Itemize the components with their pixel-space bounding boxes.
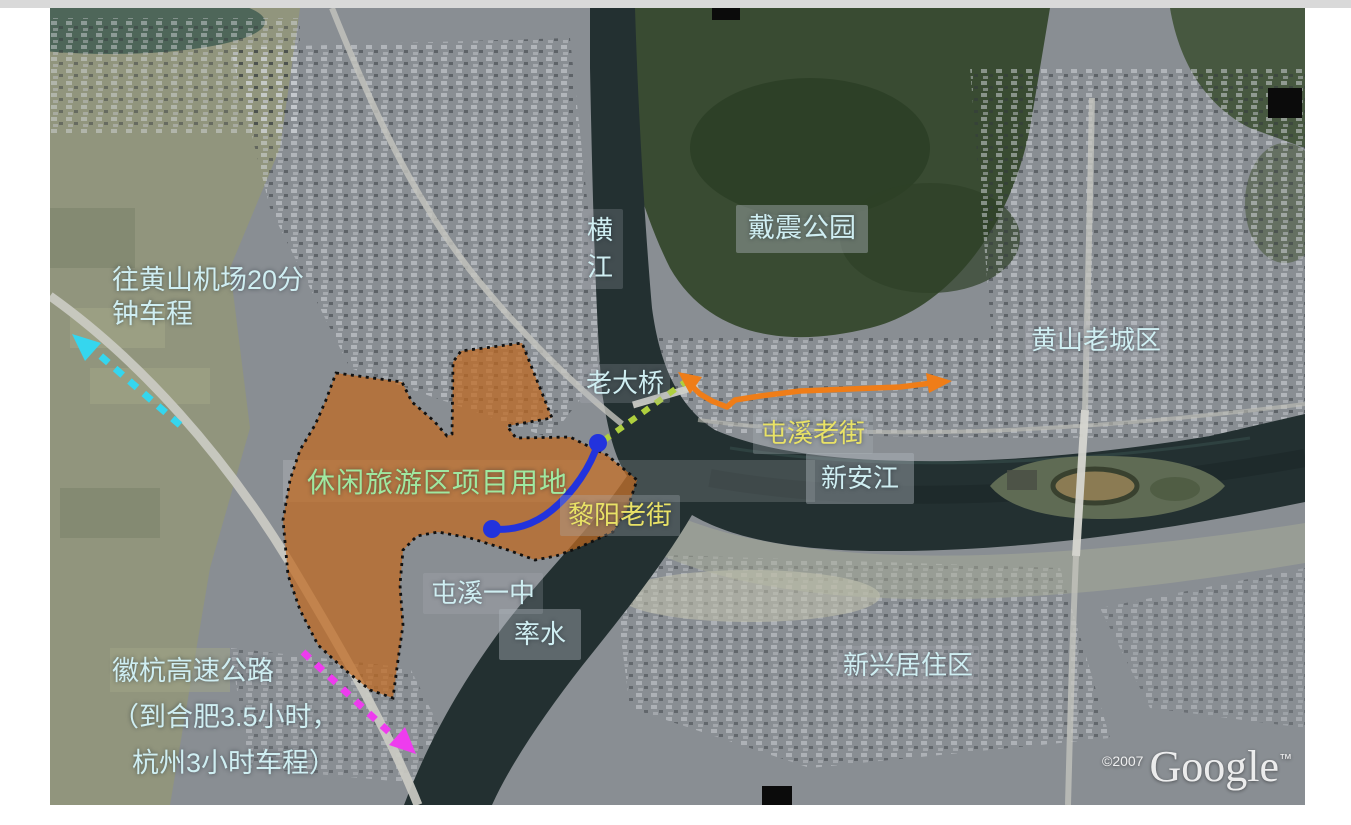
google-watermark: ©2007 Google ™ — [1102, 745, 1292, 789]
expressway-note-line3: 杭州3小时车程） — [112, 740, 339, 786]
expressway-note-line1: 徽杭高速公路 — [112, 648, 339, 694]
tunxi-old-street-label: 屯溪老街 — [753, 413, 873, 454]
blue-route-endpoint-north — [589, 434, 607, 452]
expressway-note: 徽杭高速公路 （到合肥3.5小时， 杭州3小时车程） — [112, 648, 339, 786]
shuai-river-label: 率水 — [499, 609, 581, 660]
old-bridge-label: 老大桥 — [580, 364, 670, 403]
slide: 往黄山机场20分 钟车程 横江 戴震公园 老大桥 黄山老城区 屯溪老街 新安江 … — [0, 0, 1351, 825]
huangshan-old-town-label: 黄山老城区 — [1025, 321, 1167, 360]
project-area-label: 休闲旅游区项目用地 — [307, 465, 568, 500]
expressway-note-line2: （到合肥3.5小时， — [112, 694, 339, 740]
new-residential-label: 新兴居住区 — [837, 646, 979, 685]
airport-note: 往黄山机场20分 钟车程 — [112, 264, 304, 332]
airport-note-line2: 钟车程 — [112, 298, 304, 332]
island-stadium — [1053, 469, 1137, 503]
liyang-old-street-label: 黎阳老街 — [560, 495, 680, 536]
satellite-map: 往黄山机场20分 钟车程 横江 戴震公园 老大桥 黄山老城区 屯溪老街 新安江 … — [50, 8, 1305, 805]
watermark-copyright: ©2007 — [1102, 753, 1143, 769]
old-town-city — [970, 68, 1305, 438]
blue-route-endpoint-south — [483, 520, 501, 538]
tunxi-no1-school-label: 屯溪一中 — [423, 573, 543, 614]
airport-note-line1: 往黄山机场20分 — [112, 264, 304, 298]
watermark-tm: ™ — [1279, 751, 1292, 766]
sandbar — [620, 570, 880, 622]
top-gray-bar — [0, 0, 1351, 8]
xinan-river-label: 新安江 — [806, 453, 914, 504]
heng-river-label: 横江 — [581, 209, 623, 289]
google-logo: Google — [1149, 745, 1279, 789]
daizhen-park-label: 戴震公园 — [736, 205, 868, 253]
